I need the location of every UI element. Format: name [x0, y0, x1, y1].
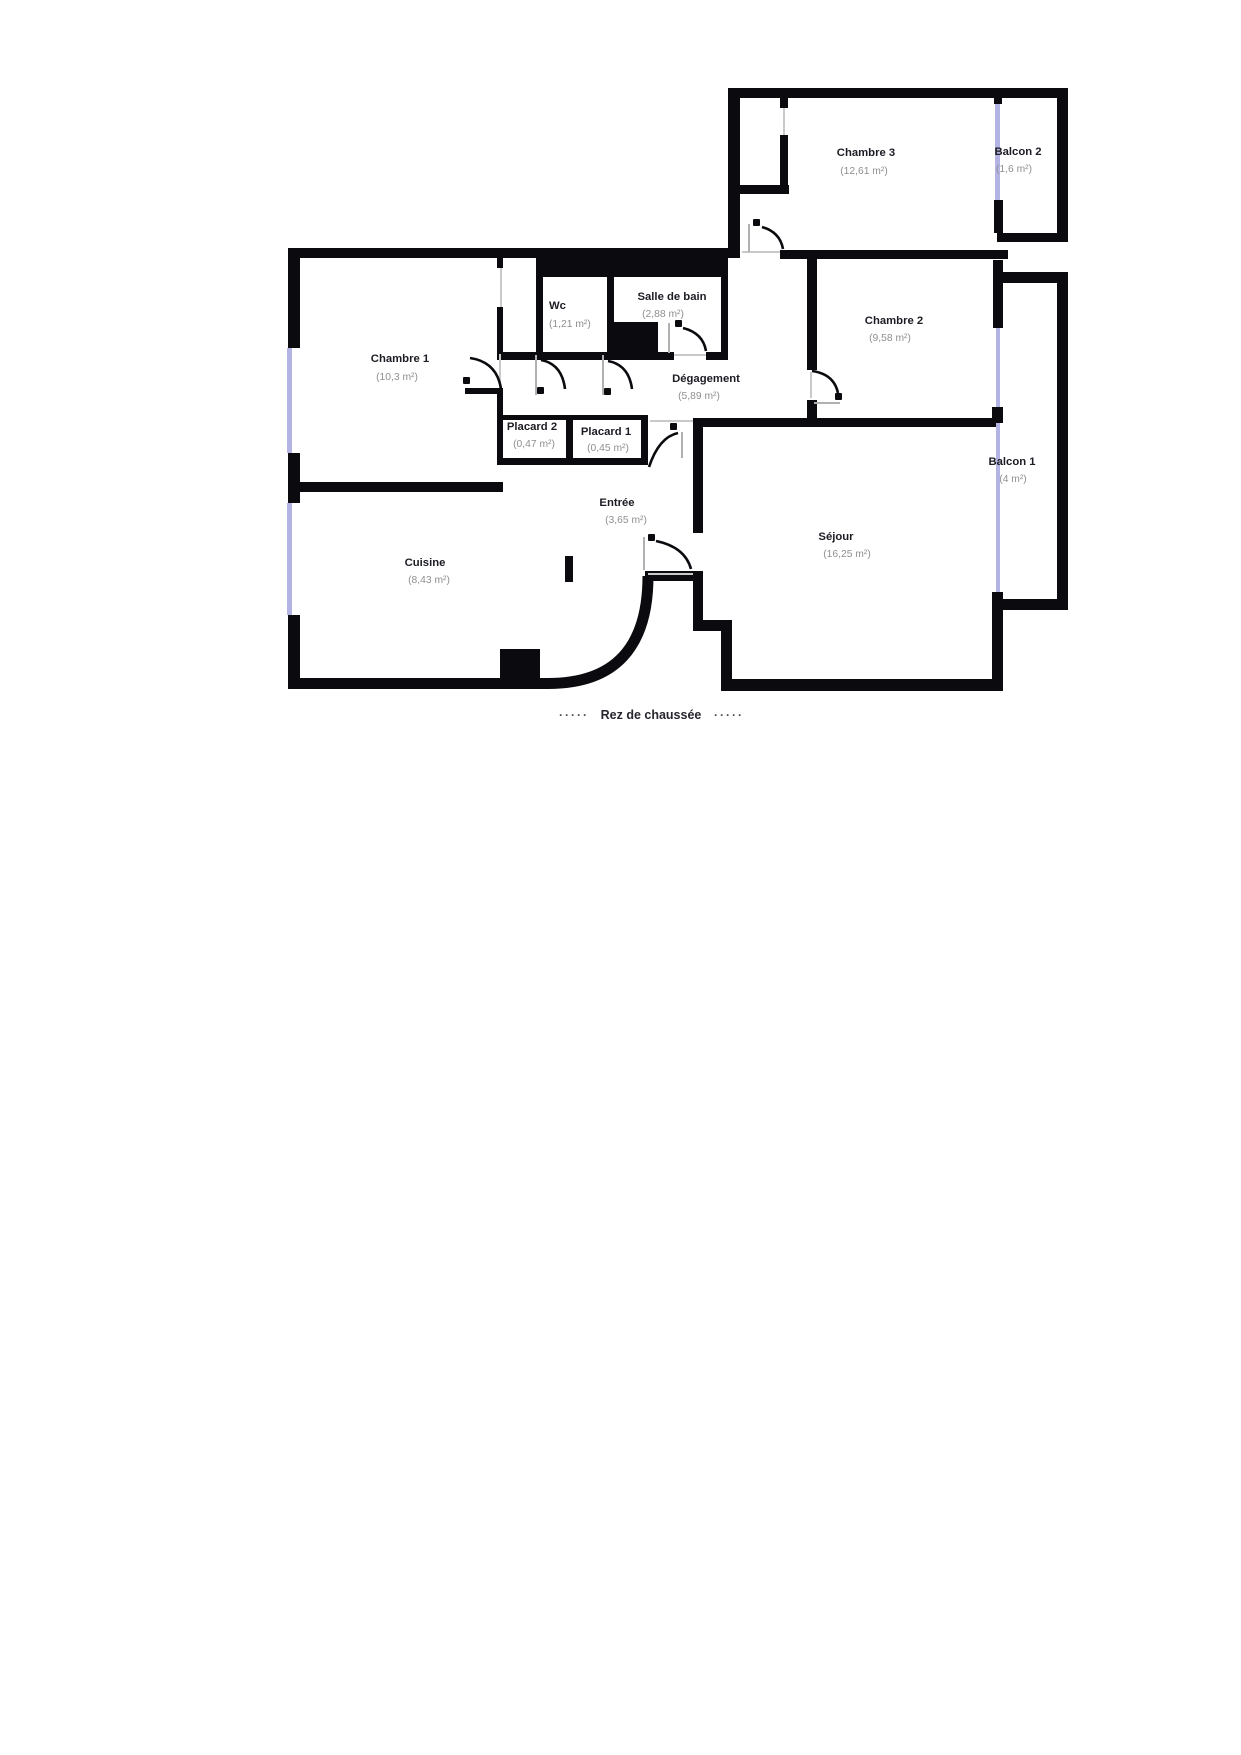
room-label-entree: Entrée (3,65 m²) [599, 497, 646, 526]
room-label-degagement: Dégagement (5,89 m²) [672, 373, 740, 402]
room-area-wc: (1,21 m²) [549, 319, 591, 330]
room-name-placard-1: Placard 1 [581, 426, 631, 438]
room-label-cuisine: Cuisine (8,43 m²) [405, 557, 450, 586]
room-area-salle-de-bain: (2,88 m²) [642, 309, 684, 320]
room-area-degagement: (5,89 m²) [678, 391, 720, 402]
room-area-placard-1: (0,45 m²) [587, 443, 629, 454]
room-labels-layer: Chambre 3 (12,61 m²) Balcon 2 (1,6 m²) C… [371, 146, 1042, 586]
room-name-wc: Wc [549, 300, 566, 312]
room-area-chambre-3: (12,61 m²) [840, 166, 888, 177]
walls-layer [288, 88, 1068, 691]
door-placard2 [535, 355, 565, 395]
caption-text: Rez de chaussée [601, 708, 702, 722]
window-chambre2-balcon1 [996, 328, 1000, 407]
door-chambre1 [463, 358, 501, 389]
room-name-chambre-3: Chambre 3 [837, 147, 895, 159]
room-name-salle-de-bain: Salle de bain [637, 291, 706, 303]
room-name-balcon-2: Balcon 2 [994, 146, 1041, 158]
room-label-balcon-1: Balcon 1 (4 m²) [988, 456, 1035, 485]
exterior-wall-top [728, 88, 1068, 98]
floor-plan-page: Chambre 3 (12,61 m²) Balcon 2 (1,6 m²) C… [0, 0, 1241, 1755]
room-area-placard-2: (0,47 m²) [513, 439, 555, 450]
door-placard1 [602, 355, 632, 395]
door-chambre2 [812, 371, 842, 404]
exterior-wall-left [288, 248, 300, 348]
cuisine-bottom-wall [288, 678, 548, 689]
window-cuisine [287, 503, 292, 615]
door-entree-top [649, 423, 683, 467]
room-area-chambre-1: (10,3 m²) [376, 372, 418, 383]
room-label-chambre-2: Chambre 2 (9,58 m²) [865, 315, 923, 344]
room-area-chambre-2: (9,58 m²) [869, 333, 911, 344]
degagement-sejour-wall [693, 418, 998, 427]
kitchen-duct-box [500, 649, 540, 678]
room-area-sejour: (16,25 m²) [823, 549, 871, 560]
floor-plan: Chambre 3 (12,61 m²) Balcon 2 (1,6 m²) C… [0, 0, 1241, 1755]
room-label-wc: Wc (1,21 m²) [549, 300, 591, 330]
balcon1-right-wall [1057, 272, 1068, 610]
room-name-cuisine: Cuisine [405, 557, 446, 569]
floor-caption: ····· Rez de chaussée ····· [559, 708, 744, 722]
room-area-balcon-1: (4 m²) [999, 474, 1026, 485]
room-label-placard-2: Placard 2 (0,47 m²) [507, 421, 557, 450]
balcon2-right-wall [1057, 88, 1068, 242]
room-name-placard-2: Placard 2 [507, 421, 557, 433]
balcon1-top-wall [997, 272, 1067, 283]
caption-right-dashes: ····· [714, 708, 744, 722]
wc-duct-band [541, 258, 607, 277]
room-label-salle-de-bain: Salle de bain (2,88 m²) [637, 291, 706, 320]
room-name-chambre-2: Chambre 2 [865, 315, 923, 327]
bath-duct-box [612, 322, 658, 353]
room-name-degagement: Dégagement [672, 373, 740, 385]
caption-left-dashes: ····· [559, 708, 589, 722]
chambre1-bottom-wall [288, 482, 503, 492]
door-front [643, 534, 691, 570]
room-area-balcon-2: (1,6 m²) [996, 164, 1032, 175]
room-area-entree: (3,65 m²) [605, 515, 647, 526]
room-name-sejour: Séjour [818, 531, 854, 543]
room-name-entree: Entrée [599, 497, 634, 509]
bath-duct-band [613, 258, 726, 277]
balcon2-bottom-wall [997, 233, 1068, 242]
main-top-wall [288, 248, 740, 258]
door-chambre3 [748, 219, 783, 252]
room-name-chambre-1: Chambre 1 [371, 353, 429, 365]
door-salle-de-bain [668, 320, 706, 353]
sejour-bottom-wall [721, 679, 998, 691]
room-label-placard-1: Placard 1 (0,45 m²) [581, 426, 631, 454]
balcon1-bottom-wall [997, 599, 1067, 610]
room-label-sejour: Séjour (16,25 m²) [818, 531, 870, 560]
curved-wall [548, 576, 648, 684]
room-area-cuisine: (8,43 m²) [408, 575, 450, 586]
room-label-balcon-2: Balcon 2 (1,6 m²) [994, 146, 1041, 175]
room-label-chambre-1: Chambre 1 (10,3 m²) [371, 353, 429, 383]
window-chambre1 [287, 348, 292, 453]
room-name-balcon-1: Balcon 1 [988, 456, 1035, 468]
window-sejour-balcon1 [996, 423, 1000, 592]
room-label-chambre-3: Chambre 3 (12,61 m²) [837, 147, 895, 177]
